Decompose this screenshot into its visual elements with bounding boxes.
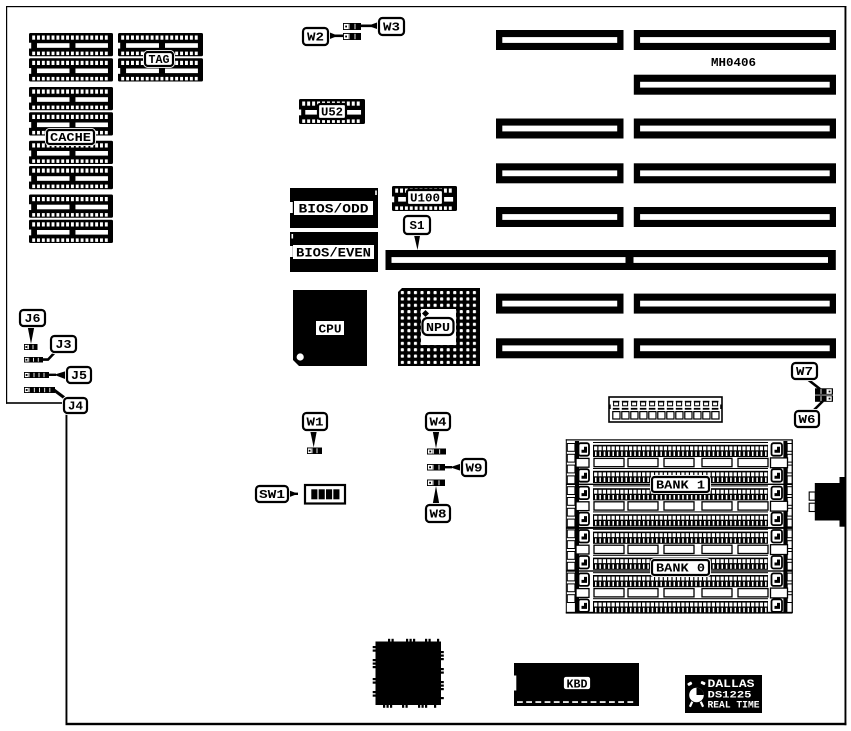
svg-text:KBD: KBD (567, 678, 588, 691)
svg-text:W7: W7 (796, 366, 813, 379)
svg-text:W8: W8 (430, 508, 447, 521)
svg-text:J3: J3 (56, 339, 72, 352)
svg-text:U52: U52 (321, 106, 343, 119)
svg-text:BIOS/EVEN: BIOS/EVEN (296, 247, 371, 261)
svg-text:W4: W4 (430, 416, 447, 429)
svg-text:TAG: TAG (149, 54, 170, 67)
svg-text:DALLAS: DALLAS (708, 679, 755, 691)
svg-text:W3: W3 (383, 21, 400, 34)
svg-text:BIOS/ODD: BIOS/ODD (299, 203, 370, 217)
svg-text:J6: J6 (25, 313, 41, 326)
svg-text:J5: J5 (71, 370, 87, 383)
svg-text:W1: W1 (307, 416, 324, 429)
svg-text:U100: U100 (410, 192, 440, 205)
svg-text:W9: W9 (466, 462, 483, 475)
svg-text:CPU: CPU (319, 323, 342, 337)
svg-text:MH0406: MH0406 (711, 57, 756, 70)
svg-text:SW1: SW1 (259, 489, 285, 502)
svg-text:BANK 0: BANK 0 (656, 562, 705, 576)
svg-text:W2: W2 (307, 31, 324, 44)
svg-text:CACHE: CACHE (50, 132, 91, 145)
svg-text:BANK 1: BANK 1 (656, 479, 705, 493)
svg-text:W6: W6 (799, 414, 816, 427)
svg-text:J4: J4 (68, 400, 83, 413)
svg-text:NPU: NPU (426, 321, 450, 335)
svg-text:S1: S1 (410, 220, 425, 233)
svg-text:REAL TIME: REAL TIME (708, 701, 760, 712)
